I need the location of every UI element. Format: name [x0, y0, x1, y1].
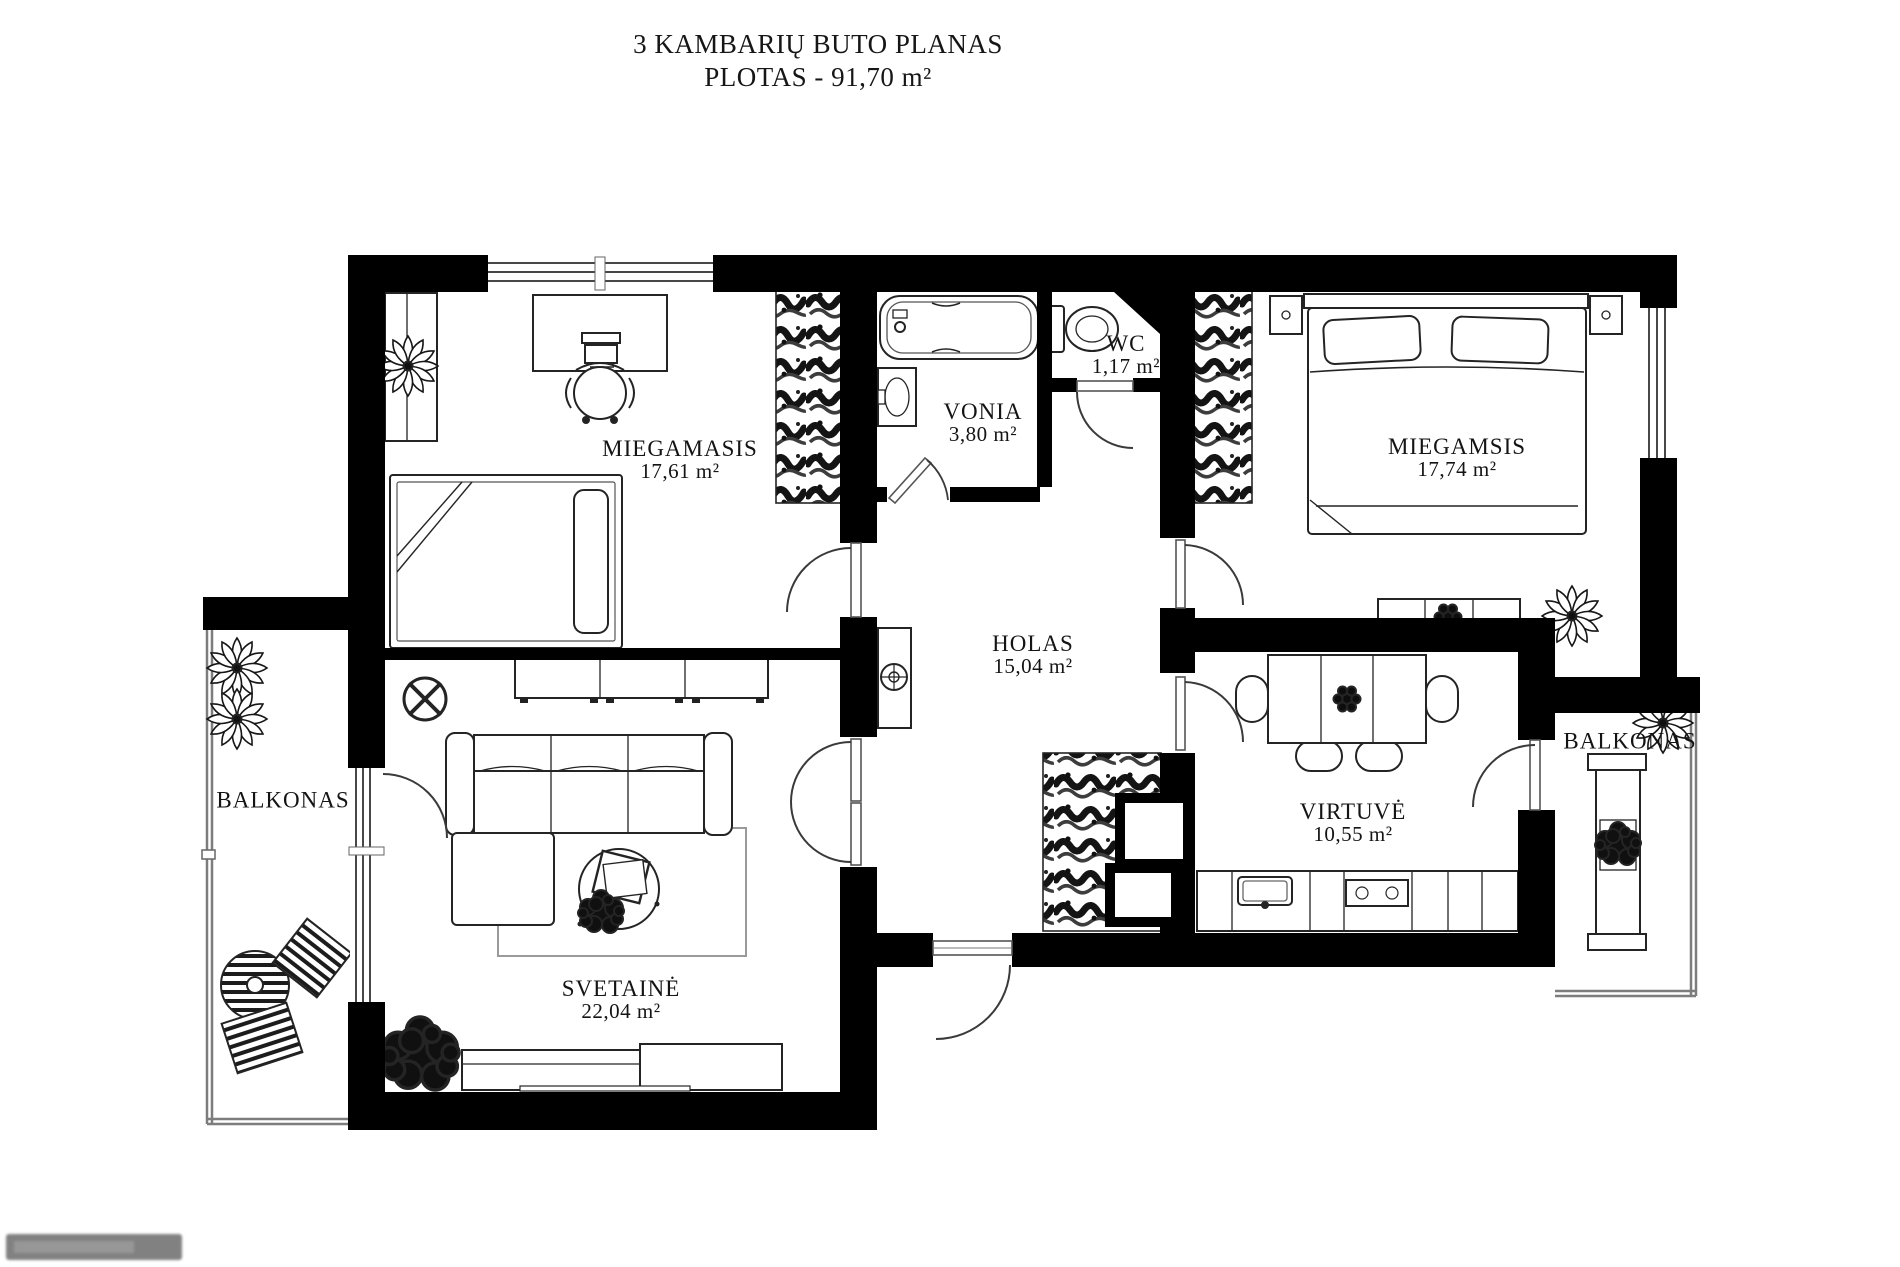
room-name: VIRTUVĖ — [1300, 800, 1407, 823]
double-bed-icon — [1304, 294, 1588, 534]
dining-chair-icon — [1426, 676, 1458, 722]
room-name: HOLAS — [992, 632, 1074, 655]
shelf-unit-icon — [515, 658, 768, 703]
label-bathroom: VONIA 3,80 m² — [943, 400, 1022, 446]
window-bedroom2-right — [1642, 308, 1675, 458]
floor-plan-page: 3 KAMBARIŲ BUTO PLANAS PLOTAS - 91,70 m²… — [0, 0, 1900, 1267]
dining-chair-icon — [1356, 741, 1402, 771]
plan-title-line2: PLOTAS - 91,70 m² — [633, 61, 1003, 94]
label-living-room: SVETAINĖ 22,04 m² — [562, 977, 681, 1023]
bed-icon — [390, 475, 622, 648]
water-heater-icon — [878, 628, 911, 728]
double-door-living-hall — [791, 739, 861, 865]
wall-shafts — [1110, 798, 1188, 922]
room-name: MIEGAMASIS — [602, 437, 758, 460]
window-bedroom1-top — [488, 257, 713, 290]
desk-icon — [533, 295, 667, 371]
door-bedroom2 — [1176, 540, 1243, 608]
room-name: VONIA — [943, 400, 1022, 423]
ceiling-lamp-icon — [404, 678, 446, 720]
door-bathroom — [889, 458, 948, 503]
label-balcony-left: BALKONAS — [216, 789, 349, 812]
label-kitchen: VIRTUVĖ 10,55 m² — [1300, 800, 1407, 846]
kitchen-sink-icon — [1238, 877, 1292, 908]
door-wc — [1077, 381, 1133, 448]
closet-hangers-icon — [1188, 291, 1252, 503]
dining-chair-icon — [1236, 676, 1268, 722]
room-name: BALKONAS — [216, 789, 349, 812]
kitchen-furniture — [1197, 655, 1518, 931]
living-room-furniture — [381, 658, 782, 1091]
room-area: 10,55 m² — [1300, 823, 1407, 846]
room-name: MIEGAMSIS — [1388, 435, 1526, 458]
room-name: SVETAINĖ — [562, 977, 681, 1000]
door-bedroom1 — [787, 543, 861, 617]
floorplan-svg — [0, 0, 1900, 1267]
label-hall: HOLAS 15,04 m² — [992, 632, 1074, 678]
room-area: 15,04 m² — [992, 655, 1074, 678]
room-area: 17,61 m² — [602, 460, 758, 483]
large-plant-icon — [381, 1017, 459, 1090]
door-kitchen-balcony — [1473, 740, 1540, 810]
left-balcony-furniture — [207, 638, 351, 1073]
room-area: 22,04 m² — [562, 1000, 681, 1023]
tv-bench-icon — [462, 1044, 782, 1091]
room-area: 1,17 m² — [1092, 355, 1160, 378]
label-bedroom1: MIEGAMASIS 17,61 m² — [602, 437, 758, 483]
room-name: WC — [1092, 332, 1160, 355]
room-area: 17,74 m² — [1388, 458, 1526, 481]
room-name: BALKONAS — [1563, 730, 1696, 753]
nightstand-icon — [1590, 296, 1622, 334]
window-living-left-glazing — [349, 768, 384, 1002]
room-area: 3,80 m² — [943, 423, 1022, 446]
nightstand-icon — [1270, 296, 1302, 334]
door-entrance — [933, 941, 1012, 1039]
bathtub-icon — [880, 296, 1038, 359]
kitchen-counter-icon — [1197, 871, 1518, 931]
table-flowers-icon — [1334, 687, 1361, 712]
dining-chair-icon — [1296, 741, 1342, 771]
closet-hangers-icon — [776, 291, 842, 503]
door-kitchen — [1176, 677, 1243, 750]
label-wc: WC 1,17 m² — [1092, 332, 1160, 378]
plan-title: 3 KAMBARIŲ BUTO PLANAS PLOTAS - 91,70 m² — [633, 28, 1003, 94]
sink-icon — [878, 368, 916, 426]
plan-title-line1: 3 KAMBARIŲ BUTO PLANAS — [633, 28, 1003, 61]
stove-icon — [1346, 880, 1408, 906]
watermark — [6, 1234, 182, 1260]
plant-icon — [207, 689, 267, 749]
label-bedroom2: MIEGAMSIS 17,74 m² — [1388, 435, 1526, 481]
lounge-chair-icon — [222, 1003, 303, 1073]
door-balcony-living — [383, 774, 447, 838]
label-balcony-right: BALKONAS — [1563, 730, 1696, 753]
